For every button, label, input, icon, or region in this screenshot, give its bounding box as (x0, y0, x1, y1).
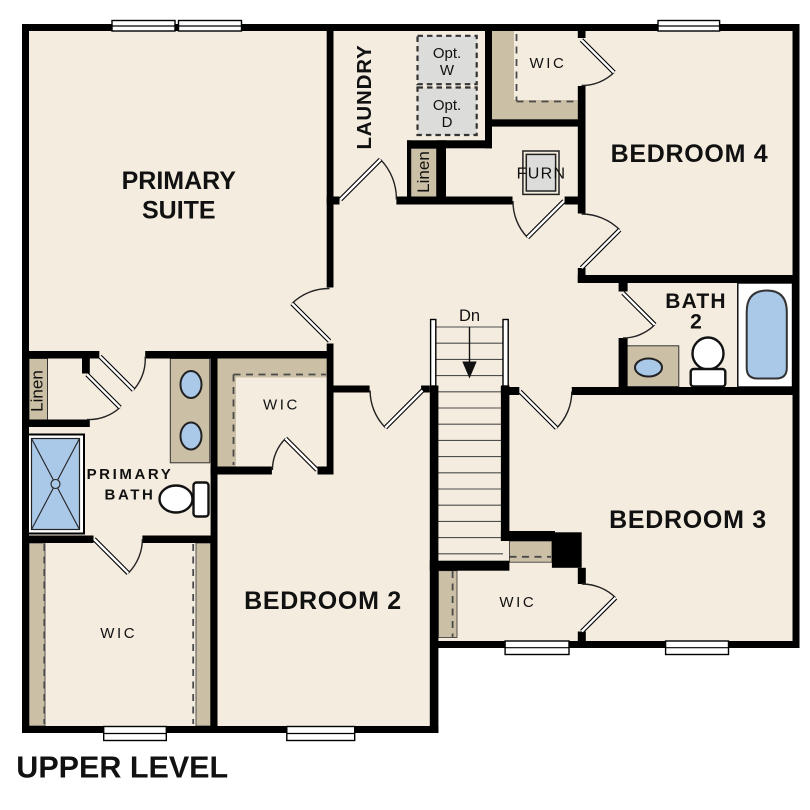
svg-text:SUITE: SUITE (142, 196, 216, 224)
svg-text:BATH: BATH (105, 487, 156, 504)
svg-text:LAUNDRY: LAUNDRY (353, 44, 376, 149)
svg-text:Opt.: Opt. (433, 45, 461, 62)
svg-text:Opt.: Opt. (433, 97, 461, 114)
svg-text:Linen: Linen (414, 151, 433, 193)
svg-text:WIC: WIC (499, 594, 536, 611)
svg-text:Dn: Dn (459, 307, 480, 325)
svg-text:UPPER LEVEL: UPPER LEVEL (16, 751, 228, 785)
svg-text:Linen: Linen (28, 370, 47, 412)
svg-text:PRIMARY: PRIMARY (122, 167, 237, 195)
svg-text:D: D (442, 114, 453, 131)
svg-text:W: W (440, 62, 455, 79)
svg-text:FURN: FURN (517, 166, 567, 183)
svg-text:BEDROOM 4: BEDROOM 4 (611, 140, 769, 168)
svg-text:WIC: WIC (530, 55, 567, 72)
svg-text:2: 2 (690, 311, 702, 334)
svg-text:WIC: WIC (100, 625, 137, 642)
svg-text:BEDROOM 2: BEDROOM 2 (244, 587, 402, 615)
svg-text:PRIMARY: PRIMARY (87, 466, 174, 483)
svg-text:BEDROOM 3: BEDROOM 3 (609, 506, 767, 534)
svg-text:WIC: WIC (263, 396, 300, 413)
